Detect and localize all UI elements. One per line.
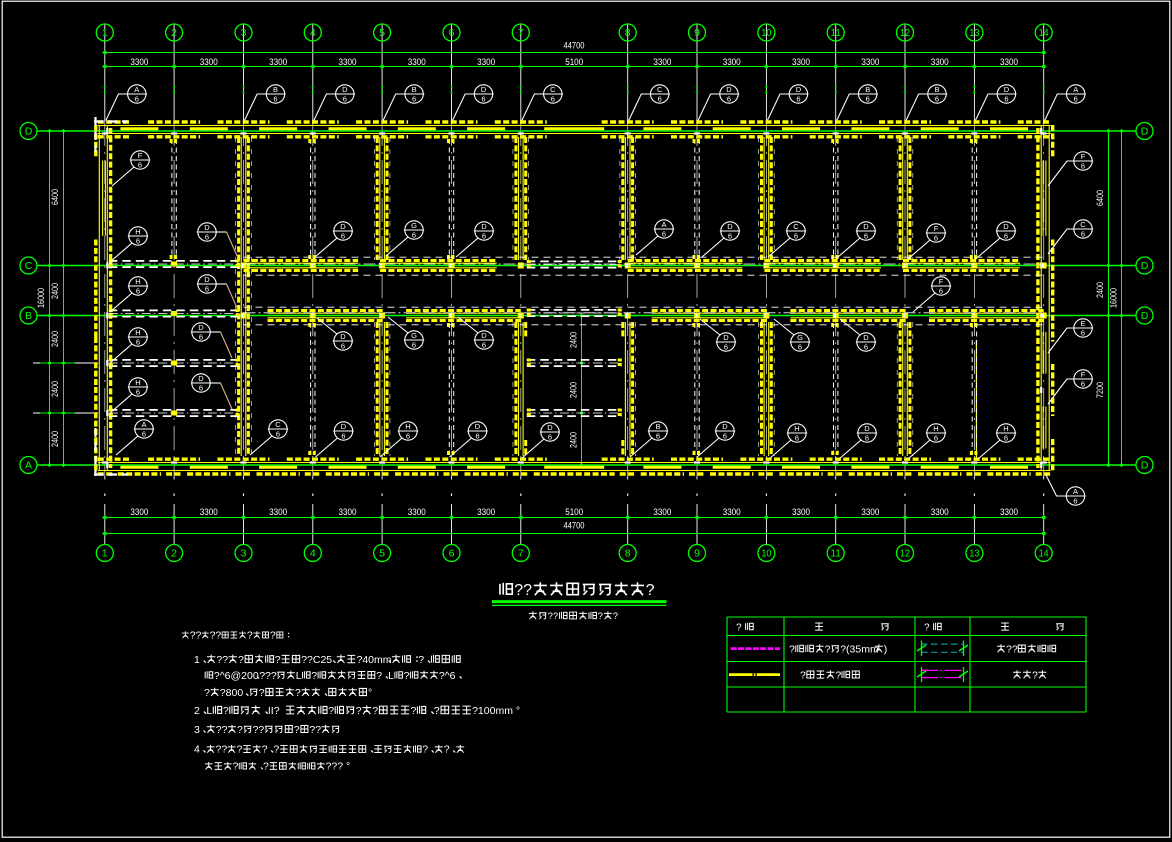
svg-text:3300: 3300 [408, 507, 426, 518]
svg-text:6: 6 [449, 27, 455, 39]
svg-text:6: 6 [794, 232, 798, 241]
svg-text:6: 6 [727, 95, 731, 104]
svg-text:??: ?? [514, 582, 532, 599]
svg-text:6: 6 [276, 430, 280, 439]
svg-text:?: ? [825, 643, 831, 655]
svg-text:6400: 6400 [50, 189, 60, 205]
svg-text:D: D [1141, 459, 1149, 471]
svg-text:6: 6 [343, 95, 347, 104]
svg-text:?: ? [259, 687, 265, 699]
svg-text:3300: 3300 [861, 57, 879, 68]
svg-text:6: 6 [795, 434, 799, 443]
svg-text:D: D [727, 222, 733, 231]
svg-text:6: 6 [864, 232, 868, 241]
svg-text:D: D [1141, 125, 1149, 137]
svg-text:5100: 5100 [565, 507, 583, 518]
svg-text:6: 6 [136, 388, 140, 397]
svg-text:3: 3 [241, 27, 247, 39]
svg-text:?: ? [356, 705, 362, 717]
svg-text:B: B [655, 422, 660, 431]
svg-text:?: ? [376, 670, 382, 682]
svg-text:?: ? [237, 724, 243, 736]
svg-text:A: A [1073, 487, 1078, 496]
svg-text:L: L [388, 670, 394, 682]
svg-text:3300: 3300 [339, 507, 357, 518]
svg-text:C: C [275, 420, 281, 429]
svg-text:6: 6 [934, 434, 938, 443]
svg-text:6: 6 [205, 233, 209, 242]
svg-text:A: A [1073, 85, 1078, 94]
svg-text:2400: 2400 [569, 382, 579, 398]
svg-text:4: 4 [194, 744, 200, 756]
svg-text:1: 1 [194, 654, 200, 666]
svg-text:10: 10 [761, 27, 771, 39]
svg-text:??: ?? [216, 744, 228, 756]
svg-text:?: ? [237, 744, 243, 756]
svg-text:D: D [723, 333, 729, 342]
svg-text:D: D [1004, 85, 1010, 94]
svg-text:?: ? [263, 761, 269, 773]
svg-text:6: 6 [449, 547, 455, 559]
svg-text:?: ? [646, 582, 655, 599]
svg-text:?: ? [270, 629, 276, 641]
svg-text:??: ?? [309, 724, 321, 736]
svg-text:9: 9 [694, 27, 700, 39]
svg-text:D: D [204, 275, 210, 284]
svg-text:3300: 3300 [723, 57, 741, 68]
svg-text:7: 7 [518, 27, 524, 39]
svg-text:6: 6 [1004, 95, 1008, 104]
svg-text:): ) [884, 643, 888, 655]
svg-text:??C25: ??C25 [301, 654, 332, 666]
svg-text:?: ? [262, 744, 268, 756]
svg-text:??: ?? [548, 611, 559, 622]
svg-text:2: 2 [171, 27, 177, 39]
svg-text:3300: 3300 [200, 57, 218, 68]
svg-text:H: H [135, 277, 140, 286]
svg-text:C: C [793, 222, 799, 231]
svg-text:?: ? [800, 669, 806, 681]
svg-text:??: ?? [1006, 643, 1018, 655]
svg-text:L: L [296, 670, 302, 682]
svg-text:D: D [864, 424, 870, 433]
svg-text:14: 14 [1039, 547, 1049, 559]
svg-text:2400: 2400 [50, 381, 60, 397]
svg-text:D: D [481, 222, 487, 231]
svg-text:6: 6 [475, 432, 479, 441]
svg-text:???: ??? [259, 670, 277, 682]
svg-text:C: C [25, 260, 33, 272]
svg-text:6: 6 [723, 432, 727, 441]
svg-text:D: D [547, 423, 553, 432]
svg-text:C: C [657, 85, 663, 94]
svg-text:6: 6 [142, 430, 146, 439]
svg-text:?800: ?800 [220, 687, 244, 699]
svg-text:A: A [134, 85, 139, 94]
svg-text:L: L [206, 705, 212, 717]
svg-text:F: F [934, 224, 939, 233]
svg-text:?: ? [247, 629, 253, 641]
svg-text:H: H [1003, 424, 1008, 433]
svg-text:2400: 2400 [569, 332, 579, 348]
svg-text:2: 2 [194, 705, 200, 717]
svg-text:D: D [25, 125, 33, 137]
svg-text:D: D [1141, 310, 1149, 322]
svg-text:16000: 16000 [1109, 288, 1119, 308]
svg-text:?: ? [233, 761, 239, 773]
svg-text:3300: 3300 [477, 57, 495, 68]
svg-text:F: F [138, 151, 143, 160]
svg-text:F: F [939, 277, 944, 286]
svg-text:D: D [722, 422, 728, 431]
svg-text:A: A [661, 220, 666, 229]
svg-text:11: 11 [831, 547, 841, 559]
svg-text:B: B [865, 85, 870, 94]
svg-text:4: 4 [310, 27, 316, 39]
svg-text:3300: 3300 [130, 57, 148, 68]
svg-text:6: 6 [412, 231, 416, 240]
svg-text:3300: 3300 [931, 57, 949, 68]
svg-text:3300: 3300 [408, 57, 426, 68]
svg-text:6: 6 [1074, 95, 1078, 104]
svg-text:?^6@200: ?^6@200 [214, 670, 259, 682]
svg-text:7: 7 [518, 547, 524, 559]
svg-text:B: B [412, 85, 417, 94]
svg-text:?: ? [328, 705, 334, 717]
svg-text:G: G [411, 331, 417, 340]
svg-text:??: ?? [253, 724, 265, 736]
svg-text:??: ?? [190, 629, 202, 641]
svg-text:H: H [794, 424, 799, 433]
svg-text:H: H [135, 227, 140, 236]
svg-text:6: 6 [482, 341, 486, 350]
svg-text:?: ? [418, 654, 424, 666]
svg-text:D: D [1141, 260, 1149, 272]
svg-text:6: 6 [939, 287, 943, 296]
svg-text:6: 6 [482, 232, 486, 241]
svg-text:6: 6 [1081, 230, 1085, 239]
svg-text:3300: 3300 [1000, 507, 1018, 518]
svg-text:6: 6 [1004, 232, 1008, 241]
svg-text:3300: 3300 [1000, 57, 1018, 68]
svg-text:6: 6 [1081, 329, 1085, 338]
svg-text:6: 6 [934, 234, 938, 243]
svg-text:?: ? [294, 724, 300, 736]
svg-text:D: D [340, 332, 346, 341]
svg-text:F: F [1081, 370, 1086, 379]
svg-text:G: G [411, 221, 417, 230]
svg-text:6: 6 [1073, 497, 1077, 506]
svg-text:2: 2 [171, 547, 177, 559]
svg-text:?: ? [1032, 669, 1038, 681]
svg-text:C: C [1080, 220, 1086, 229]
svg-text:?: ? [223, 705, 229, 717]
svg-text:II?: II? [268, 705, 280, 717]
svg-text:6: 6 [658, 95, 662, 104]
svg-text:D: D [863, 222, 869, 231]
svg-text:1: 1 [102, 27, 108, 39]
svg-text:D: D [341, 422, 347, 431]
svg-text:14: 14 [1039, 27, 1049, 39]
svg-text:?^6: ?^6 [439, 670, 456, 682]
svg-text:?: ? [273, 744, 279, 756]
svg-text:6: 6 [662, 230, 666, 239]
svg-text:3300: 3300 [653, 507, 671, 518]
svg-text:3300: 3300 [861, 507, 879, 518]
svg-text:2400: 2400 [50, 331, 60, 347]
svg-text:6: 6 [798, 343, 802, 352]
svg-text:2400: 2400 [1095, 282, 1105, 298]
svg-text:D: D [796, 85, 802, 94]
svg-text:2400: 2400 [569, 432, 579, 448]
svg-text:1: 1 [102, 547, 108, 559]
svg-text:A: A [25, 459, 32, 471]
svg-text:6: 6 [135, 95, 139, 104]
svg-text:??: ?? [216, 724, 228, 736]
svg-text:D: D [863, 333, 869, 342]
svg-text:H: H [135, 328, 140, 337]
svg-text:12: 12 [900, 547, 910, 559]
svg-text:?: ? [422, 744, 428, 756]
svg-text:6: 6 [656, 432, 660, 441]
svg-text:6: 6 [935, 95, 939, 104]
svg-text:44700: 44700 [564, 521, 585, 532]
svg-text:6: 6 [136, 287, 140, 296]
svg-text:?: ? [295, 687, 301, 699]
svg-text:E: E [1080, 319, 1085, 328]
svg-text:D: D [198, 323, 204, 332]
svg-text:3300: 3300 [269, 57, 287, 68]
svg-text:?: ? [238, 654, 244, 666]
svg-text:?: ? [404, 670, 410, 682]
svg-text:6: 6 [406, 432, 410, 441]
svg-text:6: 6 [551, 95, 555, 104]
svg-text:10: 10 [761, 547, 771, 559]
svg-text:C: C [550, 85, 556, 94]
svg-text:°: ° [368, 687, 372, 699]
svg-text:D: D [340, 222, 346, 231]
svg-text:?: ? [924, 622, 930, 633]
svg-text:3300: 3300 [477, 507, 495, 518]
svg-text:9: 9 [694, 547, 700, 559]
svg-text:7200: 7200 [1095, 382, 1105, 398]
svg-text:6: 6 [865, 434, 869, 443]
svg-text:D: D [481, 331, 487, 340]
svg-text:?: ? [311, 670, 317, 682]
svg-text:6: 6 [548, 433, 552, 442]
svg-text:6: 6 [341, 432, 345, 441]
svg-text:6: 6 [1004, 434, 1008, 443]
svg-text:3300: 3300 [723, 507, 741, 518]
svg-text:D: D [475, 422, 481, 431]
svg-text:6: 6 [481, 95, 485, 104]
svg-text:3: 3 [194, 724, 200, 736]
svg-text:D: D [204, 223, 210, 232]
svg-text:?: ? [275, 654, 281, 666]
svg-text:6: 6 [199, 384, 203, 393]
svg-text:2400: 2400 [50, 283, 60, 299]
svg-text:3300: 3300 [931, 507, 949, 518]
svg-text:?: ? [411, 705, 417, 717]
svg-text:?: ? [835, 669, 841, 681]
svg-text:??: ?? [210, 629, 222, 641]
svg-text:D: D [198, 374, 204, 383]
svg-text:?100mm °: ?100mm ° [472, 705, 520, 717]
svg-text:3300: 3300 [792, 57, 810, 68]
svg-text:6: 6 [205, 285, 209, 294]
svg-text:?: ? [789, 643, 795, 655]
svg-text:D: D [726, 85, 732, 94]
svg-text:G: G [797, 333, 803, 342]
svg-text:6: 6 [199, 333, 203, 342]
svg-text:6: 6 [341, 232, 345, 241]
svg-text:H: H [135, 378, 140, 387]
svg-text:8: 8 [625, 27, 631, 39]
svg-text:6: 6 [273, 95, 277, 104]
svg-text:6: 6 [138, 161, 142, 170]
svg-text:?: ? [444, 744, 450, 756]
svg-text:6: 6 [136, 338, 140, 347]
svg-text:6: 6 [412, 95, 416, 104]
svg-text:?: ? [736, 622, 742, 633]
svg-text:H: H [405, 422, 410, 431]
svg-text:6400: 6400 [1095, 190, 1105, 206]
svg-text:?(35mm: ?(35mm [840, 643, 879, 655]
svg-text:3300: 3300 [200, 507, 218, 518]
svg-text:?: ? [434, 705, 440, 717]
svg-text:3300: 3300 [653, 57, 671, 68]
svg-text:6: 6 [866, 95, 870, 104]
svg-text:6: 6 [412, 341, 416, 350]
svg-text:13: 13 [969, 547, 979, 559]
svg-text:?: ? [613, 611, 618, 622]
svg-text:3300: 3300 [130, 507, 148, 518]
svg-text:B: B [273, 85, 278, 94]
svg-text:6: 6 [864, 343, 868, 352]
svg-text:5: 5 [379, 547, 385, 559]
svg-text:?: ? [204, 687, 210, 699]
svg-text:A: A [141, 420, 146, 429]
svg-text:B: B [934, 85, 939, 94]
svg-text:12: 12 [900, 27, 910, 39]
svg-text:F: F [1081, 152, 1086, 161]
svg-text:13: 13 [969, 27, 979, 39]
svg-text:??: ?? [216, 654, 228, 666]
svg-text:6: 6 [1081, 380, 1085, 389]
svg-text:3300: 3300 [339, 57, 357, 68]
svg-text:6: 6 [796, 95, 800, 104]
svg-text:H: H [933, 424, 938, 433]
svg-text:6: 6 [728, 232, 732, 241]
svg-text:6: 6 [1081, 162, 1085, 171]
svg-text:5: 5 [379, 27, 385, 39]
svg-text:6: 6 [136, 237, 140, 246]
svg-text:?: ? [372, 705, 378, 717]
svg-text:44700: 44700 [564, 41, 585, 52]
svg-text:11: 11 [831, 27, 841, 39]
svg-text:2400: 2400 [50, 431, 60, 447]
svg-text:8: 8 [625, 547, 631, 559]
svg-text:?40mm: ?40mm [357, 654, 392, 666]
svg-text:4: 4 [310, 547, 316, 559]
svg-text:D: D [1003, 222, 1009, 231]
svg-text:D: D [342, 85, 348, 94]
svg-text:3300: 3300 [792, 507, 810, 518]
svg-text:D: D [481, 85, 487, 94]
svg-text:5100: 5100 [565, 57, 583, 68]
svg-text:16000: 16000 [36, 288, 46, 308]
svg-text:6: 6 [724, 343, 728, 352]
svg-text:6: 6 [341, 342, 345, 351]
svg-text:3: 3 [241, 547, 247, 559]
svg-text:3300: 3300 [269, 507, 287, 518]
svg-text:??? °: ??? ° [326, 761, 351, 773]
svg-text:B: B [25, 310, 32, 322]
svg-text:?: ? [598, 611, 603, 622]
